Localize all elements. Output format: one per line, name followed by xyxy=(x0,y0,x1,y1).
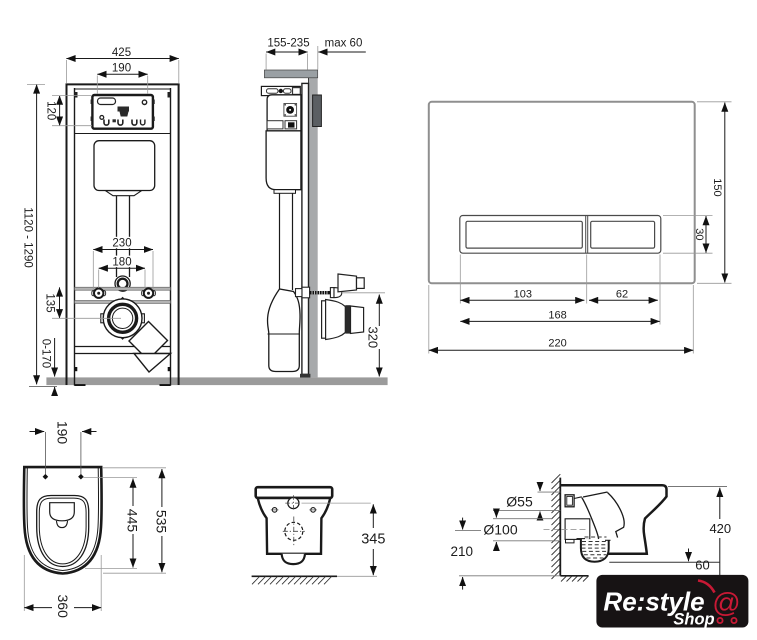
svg-text:420: 420 xyxy=(709,521,731,536)
svg-text:62: 62 xyxy=(616,288,628,300)
svg-text:103: 103 xyxy=(514,288,532,300)
svg-text:345: 345 xyxy=(361,531,385,547)
svg-text:210: 210 xyxy=(451,544,474,559)
svg-text:0-170: 0-170 xyxy=(40,339,52,368)
svg-text:155-235: 155-235 xyxy=(267,38,309,50)
svg-text:168: 168 xyxy=(548,309,566,321)
svg-text:Ø55: Ø55 xyxy=(506,494,533,510)
svg-text:320: 320 xyxy=(366,326,381,348)
svg-text:max 60: max 60 xyxy=(325,38,363,50)
svg-text:@: @ xyxy=(712,587,740,618)
svg-text:1120 - 1290: 1120 - 1290 xyxy=(22,207,34,268)
svg-text:445: 445 xyxy=(125,509,141,533)
svg-text:Shop: Shop xyxy=(673,611,714,629)
svg-text:150: 150 xyxy=(711,178,723,196)
svg-text:30: 30 xyxy=(693,228,705,240)
svg-text:360: 360 xyxy=(55,595,71,619)
svg-text:60: 60 xyxy=(695,557,709,572)
svg-text:135: 135 xyxy=(44,293,56,312)
svg-text:230: 230 xyxy=(112,238,131,250)
svg-text:220: 220 xyxy=(548,337,566,349)
svg-text:120: 120 xyxy=(45,101,57,120)
svg-text:190: 190 xyxy=(112,63,131,75)
svg-text:190: 190 xyxy=(55,421,71,445)
svg-text:Ø100: Ø100 xyxy=(483,522,517,538)
svg-text:425: 425 xyxy=(112,47,131,59)
svg-text:535: 535 xyxy=(154,510,170,534)
svg-text:180: 180 xyxy=(112,256,131,268)
